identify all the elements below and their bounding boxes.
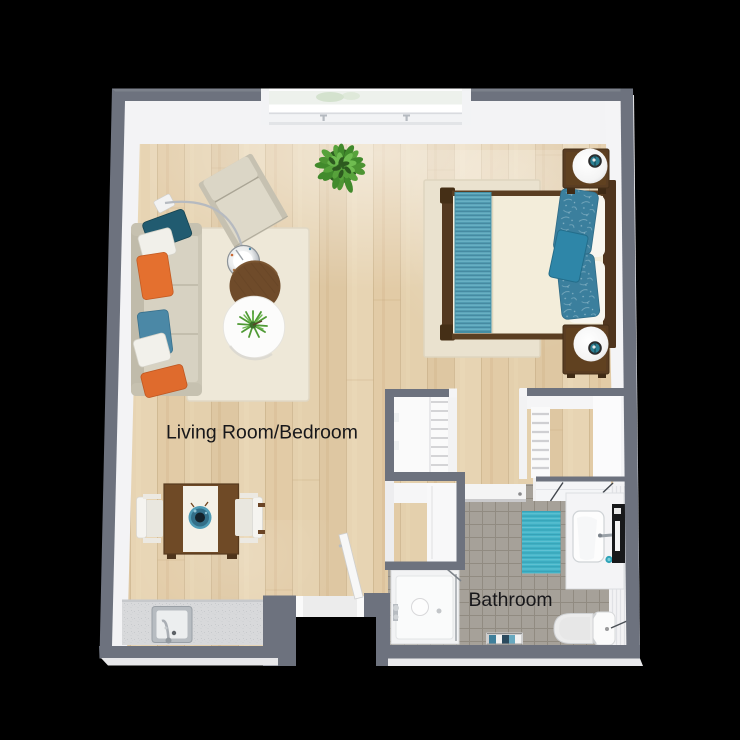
svg-text:Bathroom: Bathroom (469, 589, 553, 611)
svg-text:Living Room/Bedroom: Living Room/Bedroom (166, 422, 358, 444)
